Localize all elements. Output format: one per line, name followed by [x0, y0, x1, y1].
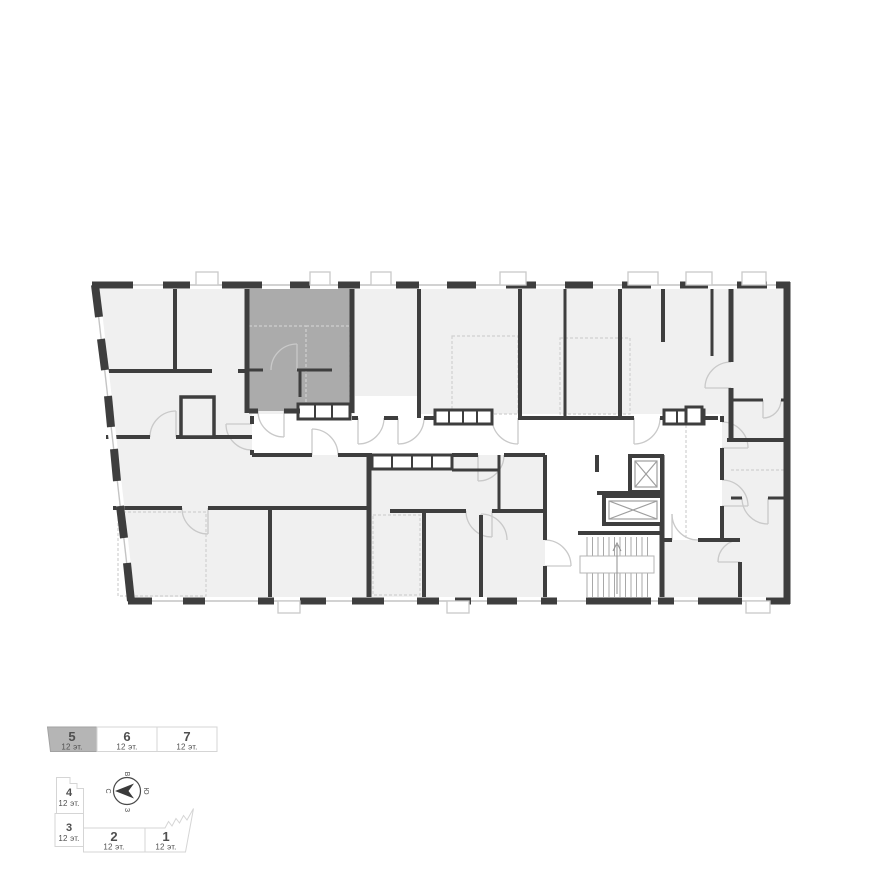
closet-room: [181, 397, 214, 437]
svg-text:4: 4: [66, 787, 73, 799]
compass-north-label: С: [104, 788, 111, 793]
svg-text:12 эт.: 12 эт.: [155, 843, 176, 852]
svg-text:12 эт.: 12 эт.: [176, 743, 197, 752]
compass-west-label: З: [123, 808, 130, 812]
svg-text:3: 3: [66, 822, 72, 834]
legend-section-3[interactable]: 3 12 эт.: [55, 814, 84, 847]
legend-section-5[interactable]: 5 12 эт.: [48, 727, 98, 752]
floor-plan-page: 5 12 эт. 6 12 эт. 7 12 эт. 4 12 эт. 3 12…: [0, 0, 880, 880]
elevator-1: [630, 456, 662, 492]
legend-section-7[interactable]: 7 12 эт.: [157, 727, 217, 752]
elevator-2: [604, 496, 662, 524]
legend-section-6[interactable]: 6 12 эт.: [97, 727, 157, 752]
shaft-box: [686, 407, 702, 424]
compass-south-label: Ю: [142, 787, 149, 794]
legend-section-1[interactable]: 1 12 эт.: [145, 809, 194, 853]
compass-icon: В Ю З С: [104, 772, 149, 812]
svg-text:12 эт.: 12 эт.: [58, 834, 79, 843]
svg-text:12 эт.: 12 эт.: [103, 843, 124, 852]
svg-text:12 эт.: 12 эт.: [116, 743, 137, 752]
floor-plan: [92, 272, 790, 613]
legend-section-2[interactable]: 2 12 эт.: [84, 828, 146, 852]
svg-text:12 эт.: 12 эт.: [61, 743, 82, 752]
compass-east-label: В: [123, 772, 130, 777]
svg-text:12 эт.: 12 эт.: [58, 799, 79, 808]
legend-section-4[interactable]: 4 12 эт.: [57, 778, 84, 814]
floor-plan-canvas: 5 12 эт. 6 12 эт. 7 12 эт. 4 12 эт. 3 12…: [0, 0, 880, 880]
